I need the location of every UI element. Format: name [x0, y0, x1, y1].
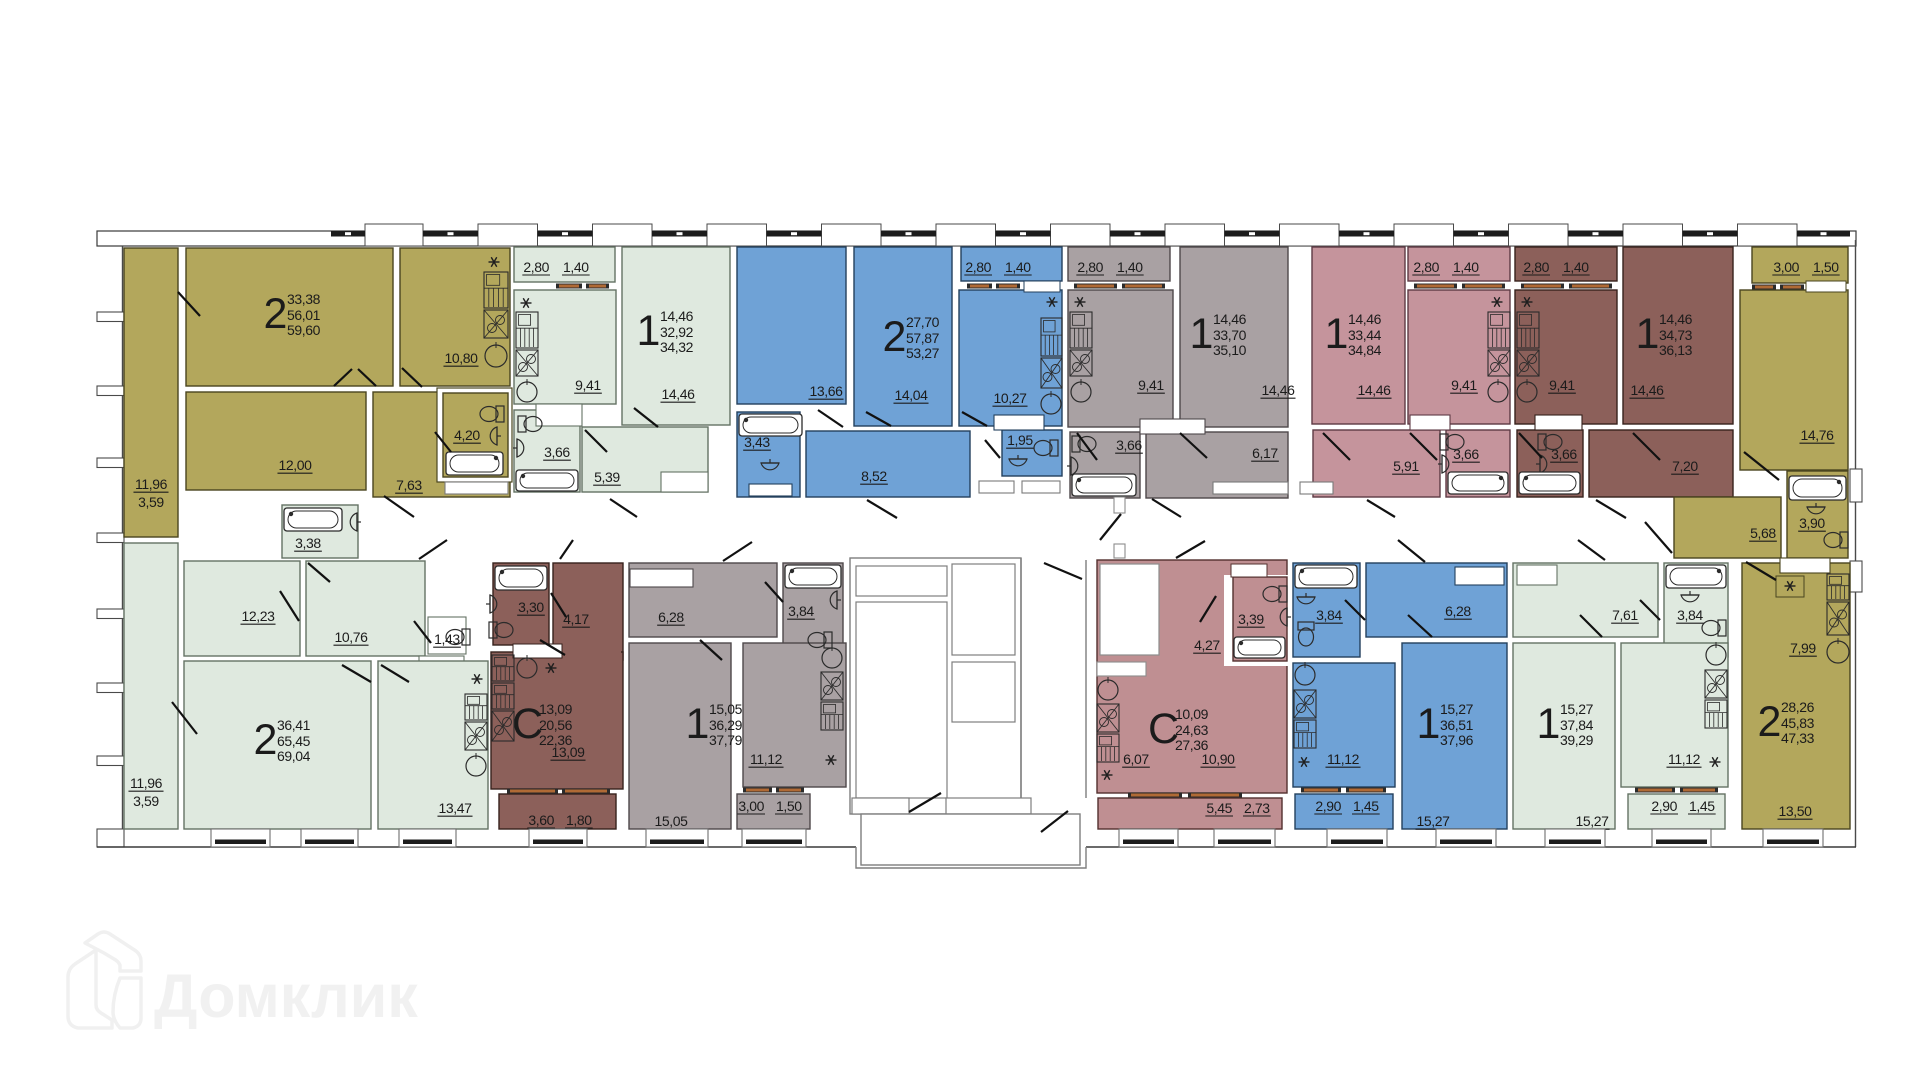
svg-text:3,39: 3,39: [1238, 611, 1264, 627]
svg-text:2,80: 2,80: [1413, 259, 1439, 275]
svg-text:36,29: 36,29: [709, 717, 743, 733]
svg-text:37,96: 37,96: [1440, 732, 1474, 748]
svg-text:2,80: 2,80: [965, 259, 991, 275]
svg-text:3,38: 3,38: [295, 535, 321, 551]
svg-text:7,61: 7,61: [1612, 607, 1638, 623]
svg-text:10,80: 10,80: [444, 350, 478, 366]
svg-text:3,84: 3,84: [788, 603, 814, 619]
svg-text:24,63: 24,63: [1175, 722, 1209, 738]
svg-text:1,40: 1,40: [1005, 259, 1031, 275]
svg-text:1,40: 1,40: [1563, 259, 1589, 275]
svg-text:1,95: 1,95: [1007, 432, 1033, 448]
svg-text:15,05: 15,05: [709, 701, 743, 717]
svg-text:C: C: [1148, 705, 1178, 753]
svg-text:13,47: 13,47: [438, 800, 472, 816]
svg-text:59,60: 59,60: [287, 322, 321, 338]
svg-text:11,96: 11,96: [130, 775, 163, 791]
svg-text:35,10: 35,10: [1213, 342, 1247, 358]
svg-text:12,23: 12,23: [241, 608, 275, 624]
svg-text:11,12: 11,12: [1327, 751, 1360, 767]
svg-text:13,50: 13,50: [1778, 803, 1812, 819]
svg-text:14,46: 14,46: [661, 386, 695, 402]
svg-text:34,73: 34,73: [1659, 327, 1693, 343]
svg-text:5,68: 5,68: [1750, 525, 1776, 541]
svg-text:53,27: 53,27: [906, 345, 940, 361]
svg-text:15,05: 15,05: [654, 813, 688, 829]
svg-text:10,27: 10,27: [993, 390, 1027, 406]
svg-text:12,00: 12,00: [278, 457, 312, 473]
svg-text:3,30: 3,30: [518, 599, 544, 615]
svg-text:9,41: 9,41: [1138, 377, 1164, 393]
svg-text:5,45: 5,45: [1206, 800, 1232, 816]
svg-text:Домклик: Домклик: [154, 962, 418, 1030]
svg-text:3,66: 3,66: [544, 444, 570, 460]
svg-text:3,59: 3,59: [133, 793, 159, 809]
svg-text:5,91: 5,91: [1393, 458, 1419, 474]
svg-text:1,40: 1,40: [1453, 259, 1479, 275]
svg-text:4,20: 4,20: [454, 427, 480, 443]
svg-text:1,40: 1,40: [563, 259, 589, 275]
svg-text:13,09: 13,09: [539, 701, 573, 717]
svg-text:36,13: 36,13: [1659, 342, 1693, 358]
svg-text:1,80: 1,80: [566, 812, 592, 828]
svg-text:13,09: 13,09: [551, 744, 585, 760]
svg-text:5,39: 5,39: [594, 469, 620, 485]
svg-text:1,45: 1,45: [1353, 798, 1379, 814]
svg-text:3,66: 3,66: [1551, 446, 1577, 462]
svg-text:1: 1: [1636, 310, 1659, 358]
svg-text:15,27: 15,27: [1416, 813, 1450, 829]
svg-text:1,50: 1,50: [1813, 259, 1839, 275]
svg-text:34,32: 34,32: [660, 339, 694, 355]
svg-text:3,00: 3,00: [738, 798, 764, 814]
svg-text:1: 1: [1537, 700, 1560, 748]
svg-text:9,41: 9,41: [575, 377, 601, 393]
svg-text:6,07: 6,07: [1123, 751, 1149, 767]
svg-text:1,40: 1,40: [1117, 259, 1143, 275]
svg-text:2,80: 2,80: [1523, 259, 1549, 275]
svg-text:3,90: 3,90: [1799, 515, 1825, 531]
svg-text:7,63: 7,63: [396, 477, 422, 493]
svg-text:2: 2: [883, 313, 906, 361]
svg-text:69,04: 69,04: [277, 748, 311, 764]
svg-text:14,46: 14,46: [1630, 382, 1664, 398]
svg-text:3,66: 3,66: [1453, 446, 1479, 462]
svg-text:2,80: 2,80: [1077, 259, 1103, 275]
svg-text:33,38: 33,38: [287, 291, 321, 307]
svg-text:45,83: 45,83: [1781, 715, 1815, 731]
svg-text:37,84: 37,84: [1560, 717, 1594, 733]
svg-text:33,44: 33,44: [1348, 327, 1382, 343]
svg-text:3,60: 3,60: [528, 812, 554, 828]
svg-text:14,76: 14,76: [1800, 427, 1834, 443]
svg-text:2: 2: [1758, 698, 1781, 746]
svg-text:10,09: 10,09: [1175, 706, 1209, 722]
svg-text:39,29: 39,29: [1560, 732, 1594, 748]
svg-text:14,46: 14,46: [1357, 382, 1391, 398]
svg-text:6,28: 6,28: [1445, 603, 1471, 619]
svg-text:3,84: 3,84: [1316, 607, 1342, 623]
svg-text:10,90: 10,90: [1201, 751, 1235, 767]
svg-text:15,27: 15,27: [1575, 813, 1609, 829]
svg-text:3,84: 3,84: [1677, 607, 1703, 623]
svg-text:9,41: 9,41: [1451, 377, 1477, 393]
svg-text:2: 2: [254, 716, 277, 764]
svg-text:15,27: 15,27: [1440, 701, 1474, 717]
svg-text:1: 1: [686, 700, 709, 748]
svg-text:11,12: 11,12: [1668, 751, 1701, 767]
svg-text:14,04: 14,04: [894, 387, 928, 403]
svg-text:13,66: 13,66: [809, 383, 843, 399]
svg-text:14,46: 14,46: [1659, 311, 1693, 327]
svg-text:1,50: 1,50: [776, 798, 802, 814]
svg-text:33,70: 33,70: [1213, 327, 1247, 343]
svg-text:1: 1: [1190, 310, 1213, 358]
svg-text:1: 1: [1325, 310, 1348, 358]
svg-text:2,80: 2,80: [523, 259, 549, 275]
svg-text:56,01: 56,01: [287, 307, 321, 323]
svg-text:3,00: 3,00: [1773, 259, 1799, 275]
svg-text:3,59: 3,59: [138, 494, 164, 510]
svg-text:14,46: 14,46: [1213, 311, 1247, 327]
svg-text:7,20: 7,20: [1672, 458, 1698, 474]
svg-text:2,90: 2,90: [1315, 798, 1341, 814]
svg-text:7,99: 7,99: [1790, 640, 1816, 656]
svg-text:37,79: 37,79: [709, 732, 743, 748]
svg-text:14,46: 14,46: [1261, 382, 1295, 398]
svg-text:28,26: 28,26: [1781, 699, 1815, 715]
svg-text:36,51: 36,51: [1440, 717, 1474, 733]
svg-text:10,76: 10,76: [334, 629, 368, 645]
svg-text:47,33: 47,33: [1781, 730, 1815, 746]
svg-text:2,90: 2,90: [1651, 798, 1677, 814]
svg-text:6,28: 6,28: [658, 609, 684, 625]
svg-text:8,52: 8,52: [861, 468, 887, 484]
svg-text:14,46: 14,46: [1348, 311, 1382, 327]
svg-text:C: C: [512, 700, 542, 748]
svg-text:4,27: 4,27: [1194, 637, 1220, 653]
svg-text:6,17: 6,17: [1252, 445, 1278, 461]
svg-text:36,41: 36,41: [277, 717, 311, 733]
svg-text:9,41: 9,41: [1549, 377, 1575, 393]
svg-text:1,45: 1,45: [1689, 798, 1715, 814]
svg-text:3,66: 3,66: [1116, 437, 1142, 453]
svg-text:11,96: 11,96: [135, 476, 168, 492]
svg-text:2,73: 2,73: [1244, 800, 1270, 816]
svg-text:11,12: 11,12: [750, 751, 783, 767]
svg-text:1: 1: [637, 307, 660, 355]
svg-text:2: 2: [264, 290, 287, 338]
svg-text:34,84: 34,84: [1348, 342, 1382, 358]
svg-text:20,56: 20,56: [539, 717, 573, 733]
svg-text:65,45: 65,45: [277, 733, 311, 749]
svg-text:27,70: 27,70: [906, 314, 940, 330]
svg-text:57,87: 57,87: [906, 330, 940, 346]
svg-text:4,17: 4,17: [563, 611, 589, 627]
svg-text:14,46: 14,46: [660, 308, 694, 324]
svg-text:15,27: 15,27: [1560, 701, 1594, 717]
svg-text:32,92: 32,92: [660, 324, 694, 340]
svg-text:1: 1: [1417, 700, 1440, 748]
